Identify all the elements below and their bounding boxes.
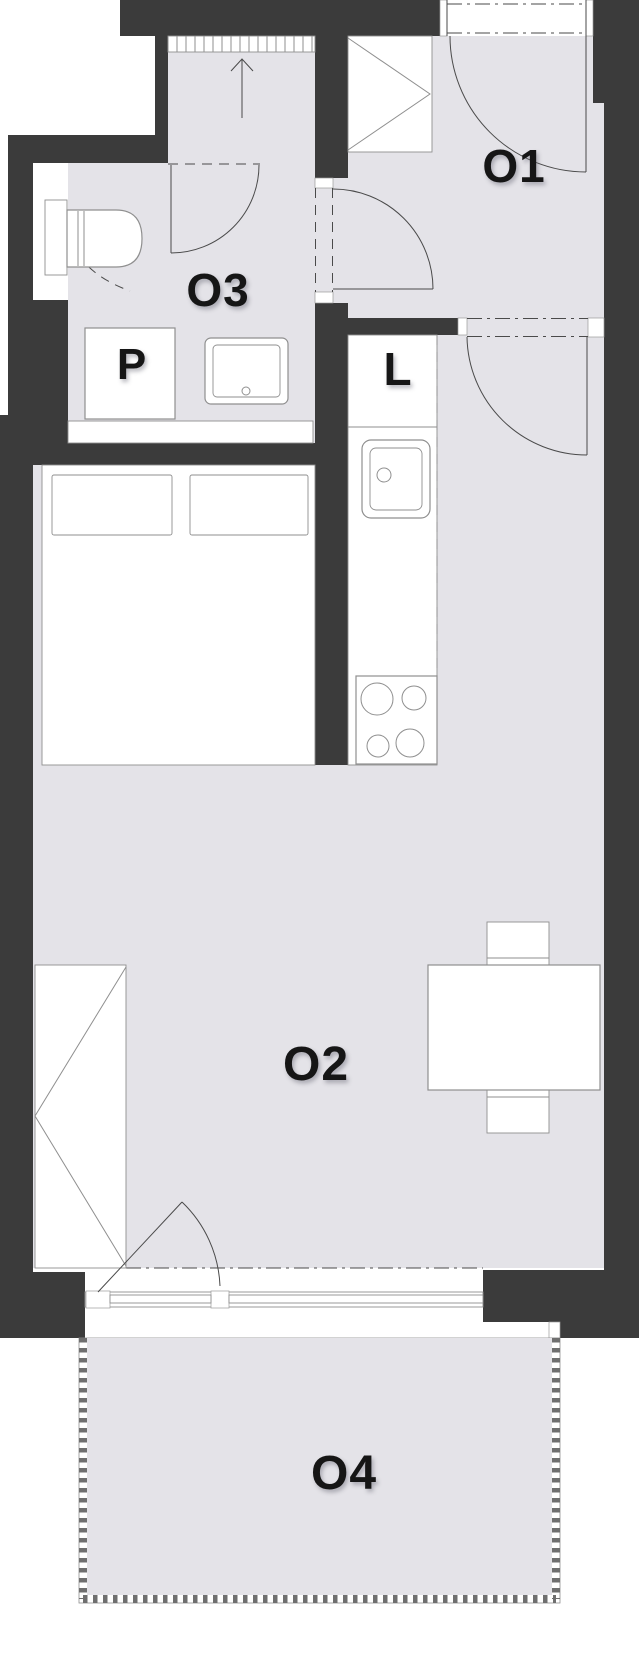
balcony-door-jamb (86, 1291, 110, 1308)
wall-bathroom-pier (33, 300, 68, 443)
window-panel (229, 1295, 483, 1303)
jamb-entry-left (440, 0, 447, 36)
floor-door-gap-room2 (467, 318, 588, 337)
bathroom-sink (205, 338, 288, 404)
wall-center (315, 303, 348, 765)
wall-right (604, 0, 639, 1270)
wall-top (120, 0, 440, 36)
room-label-o4: O4 (311, 1447, 377, 1500)
balcony-door-jamb (211, 1291, 229, 1308)
jamb-vestibule-bottom (315, 292, 333, 303)
chair (487, 1088, 549, 1133)
balcony-door-panel (110, 1295, 211, 1303)
wardrobe-room2 (35, 965, 126, 1268)
kitchen-sink (362, 440, 430, 518)
wardrobe-room1 (348, 36, 432, 152)
pillow (190, 475, 308, 535)
stairs-hatch-band (168, 36, 315, 52)
wardrobe-body (35, 965, 126, 1268)
floor-plan-drawing: O1 O2 O3 O4 P L (0, 0, 639, 1658)
jamb-room2-right (588, 318, 604, 337)
jamb-vestibule-top (315, 178, 333, 188)
jamb-room2-left (458, 318, 467, 335)
chair (487, 922, 549, 967)
floor-door-gap-vestibule (315, 178, 333, 303)
toilet-cistern (45, 200, 67, 275)
bathroom-counter (68, 421, 313, 443)
jamb-entry-right (586, 0, 593, 36)
wall-vestibule-right (315, 36, 348, 178)
room-label-o3: O3 (186, 264, 249, 316)
room-label-o1: O1 (482, 140, 545, 192)
wall-bottom-right (483, 1270, 639, 1338)
kitchen (348, 335, 437, 765)
floor-plan-page: O1 O2 O3 O4 P L (0, 0, 639, 1658)
pillow (52, 475, 172, 535)
jamb-terrace (549, 1322, 560, 1338)
dining-table (428, 965, 600, 1090)
bed (42, 465, 315, 765)
bathroom-sink-basin (213, 345, 280, 397)
wall-kitchen-top (315, 318, 458, 335)
wardrobe-body (348, 36, 432, 152)
stove (356, 676, 437, 764)
room-label-o2: O2 (283, 1038, 349, 1091)
fixture-label-washer: P (117, 340, 147, 389)
fixture-label-fridge: L (383, 343, 412, 395)
wall-bathroom-bottom (33, 443, 315, 465)
